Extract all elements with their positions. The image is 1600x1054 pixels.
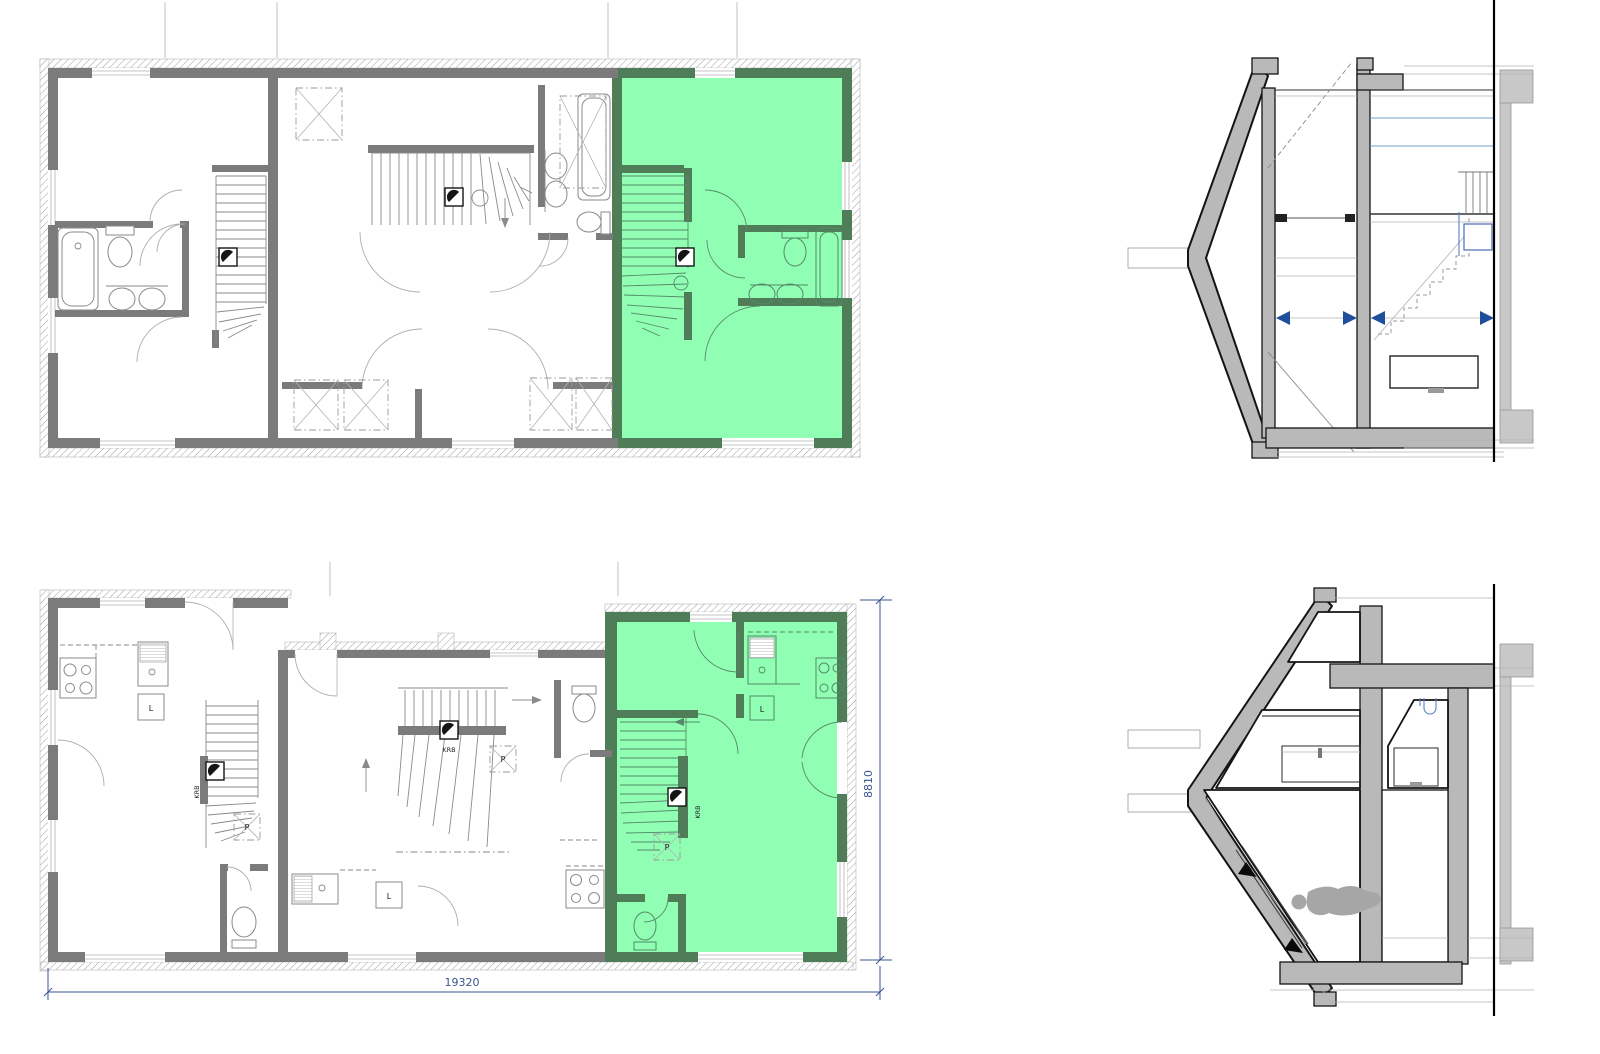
larder-label: L	[149, 704, 154, 713]
cross-section-upper	[1128, 0, 1534, 462]
architectural-drawing-sheet: L KRB P KRB P	[0, 0, 1600, 1054]
middle-unit-ground: KRB P L	[292, 654, 612, 926]
pantry-label: P	[501, 755, 506, 764]
chimney-label: KRB	[193, 785, 201, 798]
larder-label: L	[760, 705, 765, 714]
depth-dimension-value: 8810	[862, 770, 875, 798]
dimension-depth: 8810	[860, 596, 892, 964]
ground-floor-plan: L KRB P KRB P	[40, 590, 856, 971]
left-unit-upper	[55, 165, 268, 362]
larder-label: L	[387, 892, 392, 901]
left-unit-ground: L KRB P	[58, 602, 268, 952]
skylight-symbols	[294, 88, 612, 430]
dimension-width: 19320	[44, 966, 884, 1000]
pantry-label: P	[665, 843, 670, 852]
middle-unit-upper	[282, 85, 613, 438]
highlighted-unit-area-upper	[612, 78, 842, 438]
chimney-label: KRB	[442, 746, 455, 754]
plans-and-sections-svg: L KRB P KRB P	[0, 0, 1600, 1054]
upper-floor-plan	[40, 59, 860, 457]
width-dimension-value: 19320	[445, 976, 480, 989]
pantry-label: P	[245, 823, 250, 832]
cross-section-lower	[1128, 584, 1534, 1016]
chimney-label: KRB	[694, 805, 702, 818]
